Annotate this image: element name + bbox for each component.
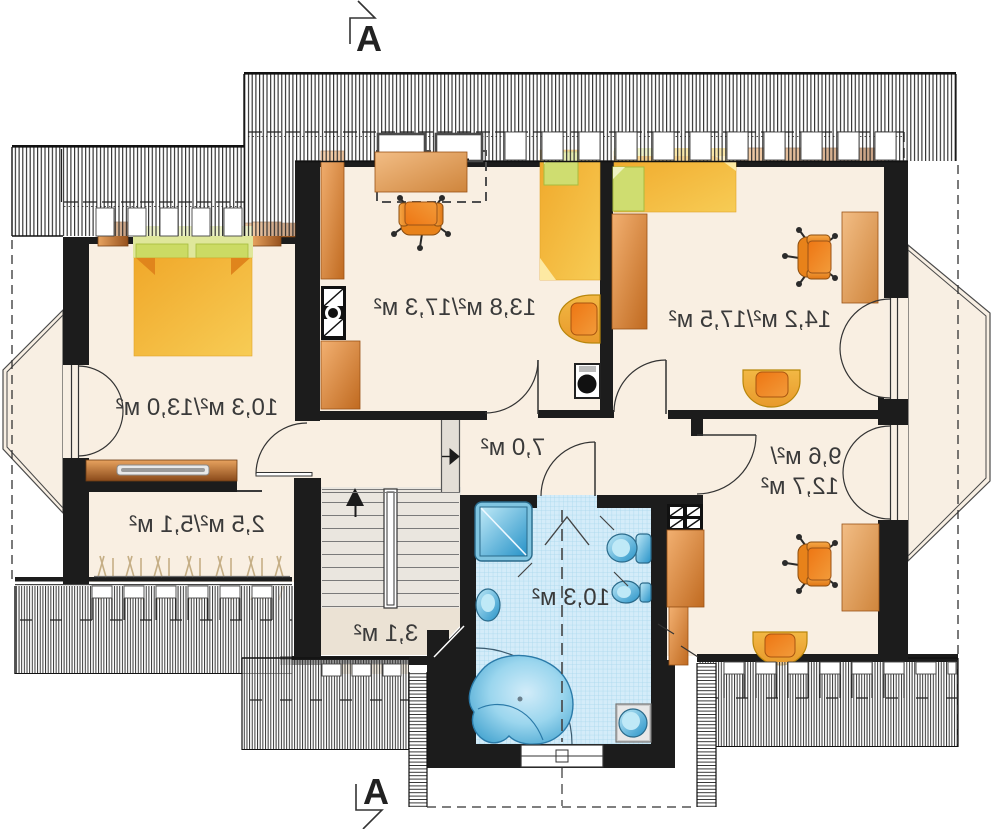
svg-text:3,1 м²: 3,1 м² xyxy=(354,620,419,647)
svg-text:A: A xyxy=(356,18,382,59)
svg-text:14,2 м²/17,5 м²: 14,2 м²/17,5 м² xyxy=(669,306,831,333)
svg-text:2,5 м²/5,1 м²: 2,5 м²/5,1 м² xyxy=(129,511,265,538)
svg-text:9,6 м²/: 9,6 м²/ xyxy=(770,443,842,470)
svg-text:A: A xyxy=(363,771,389,812)
svg-text:13,8 м²/17,3 м²: 13,8 м²/17,3 м² xyxy=(374,294,536,321)
svg-text:10,3 м²/13,0 м²: 10,3 м²/13,0 м² xyxy=(116,394,278,421)
svg-text:7,0 м²: 7,0 м² xyxy=(481,434,546,461)
svg-text:12,7 м²: 12,7 м² xyxy=(761,473,839,500)
svg-text:10,3 м²: 10,3 м² xyxy=(532,584,610,611)
